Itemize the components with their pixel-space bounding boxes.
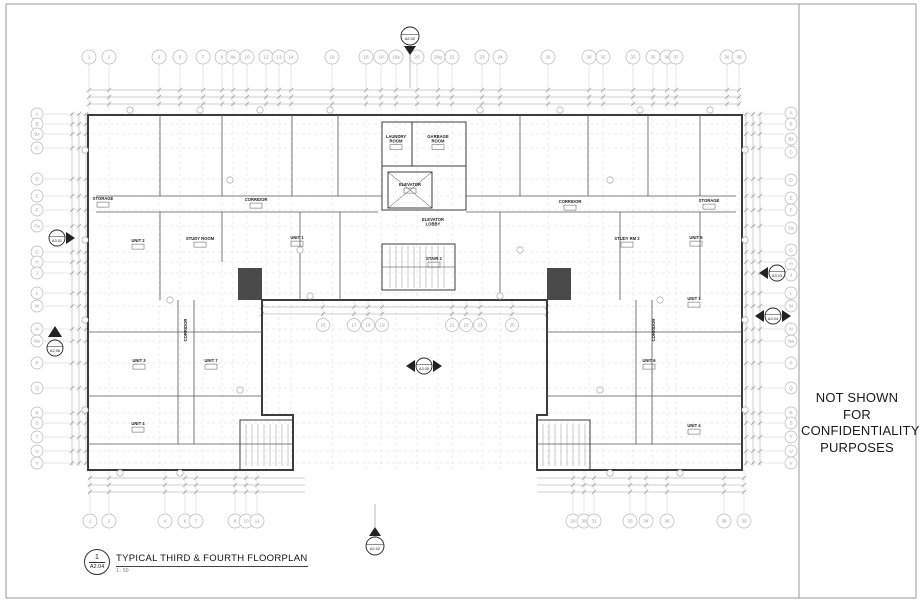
grid-bubble-top-19: 19 xyxy=(374,50,388,64)
grid-bubble-left-T: T xyxy=(31,431,43,443)
svg-text:18: 18 xyxy=(363,55,369,60)
svg-text:UNIT 4: UNIT 4 xyxy=(687,423,701,428)
grid-bubble-top-2: 2 xyxy=(102,50,116,64)
svg-text:5: 5 xyxy=(179,55,182,60)
view-marker-A3.05: A3.05 xyxy=(406,358,442,374)
grid-bubble-right-P: P xyxy=(785,357,797,369)
svg-text:10: 10 xyxy=(244,55,250,60)
svg-text:38: 38 xyxy=(721,519,727,524)
svg-text:22: 22 xyxy=(463,323,469,328)
svg-text:A2.02: A2.02 xyxy=(405,36,415,41)
grid-bubble-courtyard-17: 17 xyxy=(348,319,361,332)
svg-text:N: N xyxy=(789,327,792,332)
grid-bubble-right-D: D xyxy=(785,174,797,186)
svg-text:19: 19 xyxy=(379,323,385,328)
svg-text:Na: Na xyxy=(34,339,40,344)
grid-bubble-left-H: H xyxy=(31,256,43,268)
view-marker-A3.01: A3.01 xyxy=(49,230,75,246)
room-label-storage: STORAGE xyxy=(699,198,720,209)
grid-bubble-top-10: 10 xyxy=(240,50,254,64)
svg-text:A2.06: A2.06 xyxy=(50,348,60,353)
svg-text:Q: Q xyxy=(789,386,793,391)
grid-bubble-top-16: 16 xyxy=(325,50,339,64)
svg-text:25: 25 xyxy=(509,323,515,328)
grid-bubble-right-A: A xyxy=(785,107,797,119)
svg-text:38: 38 xyxy=(724,55,730,60)
svg-text:26: 26 xyxy=(545,55,551,60)
svg-text:Na: Na xyxy=(788,339,794,344)
room-label-laundry-room: LAUNDRYROOM xyxy=(386,134,407,150)
room-label-corridor: CORRIDOR xyxy=(245,197,268,208)
svg-text:A3.01: A3.01 xyxy=(52,238,62,243)
svg-text:21: 21 xyxy=(449,323,455,328)
room-label-corridor: CORRIDOR xyxy=(651,319,656,342)
svg-text:13: 13 xyxy=(276,55,282,60)
svg-text:10: 10 xyxy=(243,519,249,524)
grid-lines xyxy=(44,64,784,513)
detail-callout: 1 A2.04 xyxy=(84,549,110,575)
svg-text:17: 17 xyxy=(351,323,357,328)
svg-text:9: 9 xyxy=(234,519,237,524)
svg-text:LAUNDRYROOM: LAUNDRYROOM xyxy=(386,134,407,144)
svg-text:1: 1 xyxy=(88,55,91,60)
svg-text:3: 3 xyxy=(158,55,161,60)
svg-text:16: 16 xyxy=(329,55,335,60)
grid-bubble-top-12: 12 xyxy=(259,50,273,64)
grid-bubble-top-20g: 20g xyxy=(431,50,445,64)
svg-text:H: H xyxy=(35,260,38,265)
svg-text:8a: 8a xyxy=(230,55,236,60)
svg-text:G: G xyxy=(35,250,39,255)
svg-text:Fa: Fa xyxy=(34,224,40,229)
room-label-unit-4: UNIT 4 xyxy=(131,421,145,432)
grid-bubble-right-Bx: Bx xyxy=(785,133,797,145)
room-label-corridor: CORRIDOR xyxy=(183,319,188,342)
svg-text:A3.03: A3.03 xyxy=(772,273,782,278)
svg-text:A2.02: A2.02 xyxy=(370,546,380,551)
svg-text:STUDY ROOM: STUDY ROOM xyxy=(186,236,215,241)
svg-text:15: 15 xyxy=(320,323,326,328)
svg-text:24: 24 xyxy=(497,55,503,60)
svg-text:P: P xyxy=(789,361,792,366)
grid-bubble-top-30: 30 xyxy=(582,50,596,64)
svg-text:STUDY RM 2: STUDY RM 2 xyxy=(614,236,640,241)
svg-text:ELEVATOR: ELEVATOR xyxy=(399,182,421,187)
grid-bubble-left-D: D xyxy=(31,173,43,185)
room-label-unit-3: UNIT 3 xyxy=(132,358,146,369)
view-marker-A3.04: A3.04 xyxy=(755,308,791,324)
svg-text:STORAGE: STORAGE xyxy=(699,198,720,203)
svg-text:Q: Q xyxy=(35,386,39,391)
grid-bubble-right-C: C xyxy=(785,146,797,158)
room-label-storage: STORAGE xyxy=(93,196,114,207)
grid-bubble-courtyard-22: 22 xyxy=(460,319,473,332)
grid-bubble-top-19a: 19a xyxy=(389,50,403,64)
exterior-walls xyxy=(88,115,742,470)
grid-bubble-top-35: 35 xyxy=(646,50,660,64)
room-label-unit-7: UNIT 7 xyxy=(204,358,218,369)
grid-bubble-right-F: F xyxy=(785,204,797,216)
svg-text:11: 11 xyxy=(255,519,260,524)
grid-bubble-top-5: 5 xyxy=(173,50,187,64)
svg-text:U: U xyxy=(789,449,792,454)
svg-text:6: 6 xyxy=(184,519,187,524)
dimension-lines xyxy=(70,88,762,494)
wing-stairs xyxy=(240,420,590,470)
grid-bubble-right-N: N xyxy=(785,323,797,335)
svg-text:UNIT 5: UNIT 5 xyxy=(689,235,703,240)
grid-bubble-courtyard-25: 25 xyxy=(506,319,519,332)
svg-text:39: 39 xyxy=(741,519,747,524)
svg-text:J: J xyxy=(790,273,792,278)
svg-text:4: 4 xyxy=(164,519,167,524)
room-label-unit-1: UNIT 1 xyxy=(290,235,304,246)
grid-bubble-left-E: E xyxy=(31,190,43,202)
room-label-study-room: STUDY ROOM xyxy=(186,236,215,247)
grid-bubble-right-U: U xyxy=(785,445,797,457)
room-label-garbage-room: GARBAGEROOM xyxy=(427,134,449,150)
svg-text:8: 8 xyxy=(221,55,224,60)
svg-text:18: 18 xyxy=(365,323,371,328)
grid-bubble-bottom-2: 2 xyxy=(102,514,116,528)
grid-bubble-right-T: T xyxy=(785,431,797,443)
drawing-scale: 1 : 50 xyxy=(116,568,308,574)
grid-bubble-right-G: G xyxy=(785,244,797,256)
svg-text:30: 30 xyxy=(586,55,592,60)
room-label-unit-5: UNIT 5 xyxy=(689,235,703,246)
core-elevator-stair xyxy=(382,122,466,290)
svg-text:T: T xyxy=(790,435,793,440)
svg-text:UNIT 2: UNIT 2 xyxy=(131,238,145,243)
svg-text:35: 35 xyxy=(650,55,656,60)
grid-bubble-left-Fa: Fa xyxy=(31,220,43,232)
grid-bubble-right-S: S xyxy=(785,417,797,429)
grid-bubble-top-3: 3 xyxy=(152,50,166,64)
svg-text:U: U xyxy=(35,449,38,454)
grid-bubble-right-Na: Na xyxy=(785,335,797,347)
svg-text:7: 7 xyxy=(195,519,198,524)
room-label-unit-4: UNIT 4 xyxy=(687,423,701,434)
grid-bubble-left-J: J xyxy=(31,267,43,279)
view-marker-A2.02: A2.02 xyxy=(366,504,384,555)
svg-text:29: 29 xyxy=(570,519,576,524)
confidentiality-note: NOT SHOWN FOR CONFIDENTIALITY PURPOSES xyxy=(801,390,913,457)
svg-text:S: S xyxy=(35,421,38,426)
room-label-elevator-lobby: ELEVATORLOBBY xyxy=(422,217,444,227)
svg-text:37: 37 xyxy=(673,55,679,60)
svg-text:2: 2 xyxy=(108,519,111,524)
grid-bubble-right-B: B xyxy=(785,118,797,130)
grid-bubble-top-21: 21 xyxy=(445,50,459,64)
grid-bubble-top-32: 32 xyxy=(596,50,610,64)
svg-text:E: E xyxy=(789,196,792,201)
svg-text:P: P xyxy=(35,361,38,366)
svg-text:UNIT 6: UNIT 6 xyxy=(642,358,656,363)
svg-text:32: 32 xyxy=(600,55,606,60)
svg-text:T: T xyxy=(36,435,39,440)
svg-text:L: L xyxy=(790,291,793,296)
svg-text:23: 23 xyxy=(479,55,485,60)
grid-bubble-top-18: 18 xyxy=(359,50,373,64)
svg-text:L: L xyxy=(36,291,39,296)
svg-text:Fa: Fa xyxy=(788,226,794,231)
svg-text:1: 1 xyxy=(89,519,92,524)
grid-bubble-left-C: C xyxy=(31,142,43,154)
svg-text:F: F xyxy=(790,208,793,213)
grid-bubble-bottom-11: 11 xyxy=(250,514,264,528)
grid-bubble-top-39: 39 xyxy=(732,50,746,64)
grid-bubble-top-33: 33 xyxy=(626,50,640,64)
svg-text:14: 14 xyxy=(288,55,294,60)
grid-bubble-courtyard-18: 18 xyxy=(362,319,375,332)
grid-bubble-right-L: L xyxy=(785,287,797,299)
grid-bubble-bottom-31: 31 xyxy=(587,514,601,528)
svg-text:39: 39 xyxy=(736,55,742,60)
svg-text:Bx: Bx xyxy=(34,132,40,137)
grid-bubble-top-24: 24 xyxy=(493,50,507,64)
grid-bubble-left-U: U xyxy=(31,445,43,457)
svg-text:CORRIDOR: CORRIDOR xyxy=(559,199,582,204)
grid-bubble-left-N: N xyxy=(31,323,43,335)
grid-bubble-top-37: 37 xyxy=(669,50,683,64)
grid-bubble-right-Fa: Fa xyxy=(785,222,797,234)
svg-text:S: S xyxy=(789,421,792,426)
title-block: 1 A2.04 TYPICAL THIRD & FOURTH FLOORPLAN… xyxy=(84,549,308,575)
grid-bubble-right-M: M xyxy=(785,300,797,312)
grid-bubble-right-J: J xyxy=(785,269,797,281)
grid-bubble-bottom-4: 4 xyxy=(158,514,172,528)
svg-text:20: 20 xyxy=(414,55,420,60)
grid-bubble-courtyard-21: 21 xyxy=(446,319,459,332)
svg-text:UNIT 7: UNIT 7 xyxy=(204,358,218,363)
svg-text:J: J xyxy=(36,271,38,276)
svg-text:ELEVATORLOBBY: ELEVATORLOBBY xyxy=(422,217,444,227)
svg-text:N: N xyxy=(35,327,38,332)
svg-text:19a: 19a xyxy=(392,55,400,60)
svg-text:UNIT 4: UNIT 4 xyxy=(131,421,145,426)
svg-text:34: 34 xyxy=(643,519,649,524)
grid-bubble-bottom-34: 34 xyxy=(639,514,653,528)
svg-text:A3.04: A3.04 xyxy=(768,316,779,321)
svg-text:A3.05: A3.05 xyxy=(419,366,429,371)
grid-bubble-right-V: V xyxy=(785,457,797,469)
interior-walls xyxy=(88,115,742,444)
detail-number: 1 xyxy=(89,554,105,563)
grid-bubble-top-20: 20 xyxy=(410,50,424,64)
svg-text:B: B xyxy=(35,122,38,127)
grid-bubble-bottom-36: 36 xyxy=(660,514,674,528)
room-label-elevator: ELEVATOR xyxy=(399,182,421,193)
svg-text:33: 33 xyxy=(630,55,636,60)
svg-text:21: 21 xyxy=(449,55,455,60)
svg-text:STORAGE: STORAGE xyxy=(93,196,114,201)
room-label-study-rm-2: STUDY RM 2 xyxy=(614,236,640,247)
svg-text:Bx: Bx xyxy=(788,137,794,142)
svg-text:UNIT 3: UNIT 3 xyxy=(132,358,146,363)
svg-text:33: 33 xyxy=(627,519,633,524)
grid-bubble-bottom-33: 33 xyxy=(623,514,637,528)
svg-text:E: E xyxy=(35,194,38,199)
view-marker-A3.03: A3.03 xyxy=(759,265,785,281)
grid-bubble-left-F: F xyxy=(31,204,43,216)
svg-text:23: 23 xyxy=(477,323,483,328)
svg-text:UNIT 1: UNIT 1 xyxy=(687,296,701,301)
grid-bubble-left-S: S xyxy=(31,417,43,429)
svg-text:36: 36 xyxy=(664,519,670,524)
grid-bubble-courtyard-19: 19 xyxy=(376,319,389,332)
svg-text:CORRIDOR: CORRIDOR xyxy=(245,197,268,202)
svg-text:GARBAGEROOM: GARBAGEROOM xyxy=(427,134,449,144)
svg-text:CORRIDOR: CORRIDOR xyxy=(183,319,188,342)
grid-bubble-left-Bx: Bx xyxy=(31,128,43,140)
svg-text:B: B xyxy=(789,122,792,127)
svg-text:30: 30 xyxy=(581,519,587,524)
grid-bubble-top-26: 26 xyxy=(541,50,555,64)
grid-bubble-bottom-1: 1 xyxy=(83,514,97,528)
grid-bubble-right-E: E xyxy=(785,192,797,204)
svg-text:STAIR 2: STAIR 2 xyxy=(426,256,442,261)
svg-text:12: 12 xyxy=(263,55,269,60)
grid-bubble-right-H: H xyxy=(785,258,797,270)
svg-text:20g: 20g xyxy=(434,55,442,60)
svg-text:M: M xyxy=(789,304,793,309)
svg-text:UNIT 1: UNIT 1 xyxy=(290,235,304,240)
svg-text:G: G xyxy=(789,248,793,253)
grid-bubble-courtyard-23: 23 xyxy=(474,319,487,332)
svg-text:M: M xyxy=(35,304,39,309)
svg-text:31: 31 xyxy=(591,519,597,524)
grid-bubble-bottom-38: 38 xyxy=(717,514,731,528)
grid-bubble-left-V: V xyxy=(31,457,43,469)
svg-text:7: 7 xyxy=(202,55,205,60)
grid-bubble-top-8a: 8a xyxy=(226,50,240,64)
room-label-stair-2: STAIR 2 xyxy=(426,256,442,267)
svg-text:2: 2 xyxy=(108,55,111,60)
grid-bubble-top-14: 14 xyxy=(284,50,298,64)
grid-bubble-left-Na: Na xyxy=(31,335,43,347)
floorplan-drawing: 1235788a1012131416181919a2020g2123242630… xyxy=(0,0,922,615)
grid-bubble-left-L: L xyxy=(31,287,43,299)
svg-text:CORRIDOR: CORRIDOR xyxy=(651,319,656,342)
grid-bubble-left-M: M xyxy=(31,300,43,312)
grid-bubble-left-Q: Q xyxy=(31,382,43,394)
room-label-corridor: CORRIDOR xyxy=(559,199,582,210)
grid-bubble-bottom-7: 7 xyxy=(189,514,203,528)
grid-bubble-left-P: P xyxy=(31,357,43,369)
grid-bubble-right-Q: Q xyxy=(785,382,797,394)
grid-bubble-top-23: 23 xyxy=(475,50,489,64)
detail-sheet-number: A2.04 xyxy=(90,564,104,570)
room-label-unit-2: UNIT 2 xyxy=(131,238,145,249)
grid-bubble-bottom-39: 39 xyxy=(737,514,751,528)
svg-text:F: F xyxy=(36,208,39,213)
room-label-unit-6: UNIT 6 xyxy=(642,358,656,369)
grid-bubble-top-7: 7 xyxy=(196,50,210,64)
svg-text:19: 19 xyxy=(378,55,384,60)
grid-bubble-top-1: 1 xyxy=(82,50,96,64)
drawing-title: TYPICAL THIRD & FOURTH FLOORPLAN xyxy=(116,553,308,567)
room-label-unit-1: UNIT 1 xyxy=(687,296,701,307)
drawing-sheet: 1235788a1012131416181919a2020g2123242630… xyxy=(0,0,922,615)
svg-text:H: H xyxy=(789,262,792,267)
grid-bubble-courtyard-15: 15 xyxy=(317,319,330,332)
